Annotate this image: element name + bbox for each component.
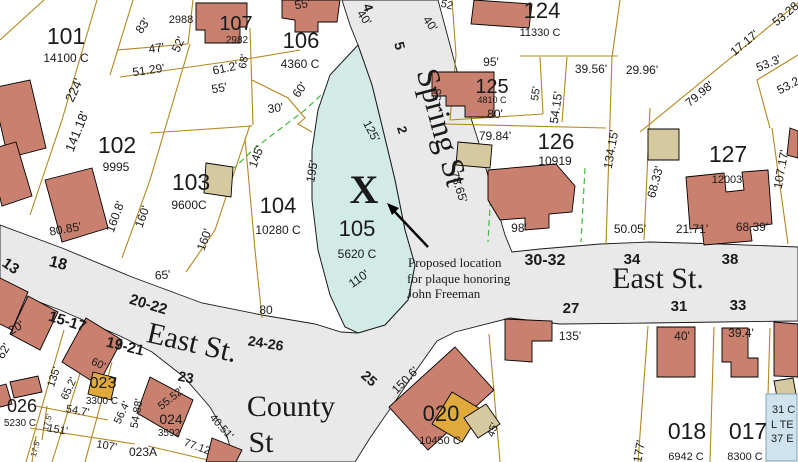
dimension-label: 224' xyxy=(62,76,86,104)
lot-area-label: 4360 C xyxy=(281,57,320,71)
lot-area-label: 11330 C xyxy=(520,27,561,39)
parcel-id-label: 124 xyxy=(524,0,561,23)
info-box-line: L TE xyxy=(771,419,794,431)
building xyxy=(774,322,798,377)
dimension-label: 50.05' xyxy=(614,222,646,236)
dimension-label: 80' xyxy=(487,107,503,121)
dimension-label: 83' xyxy=(133,15,153,36)
street-number-label: 31 xyxy=(671,298,688,315)
dimension-label: 17.17' xyxy=(728,27,762,59)
dimension-label: 160' xyxy=(194,227,215,253)
dimension-label: 53.28 xyxy=(769,0,798,29)
parcel-id-label: 104 xyxy=(260,193,297,218)
parcel-id-label: 106 xyxy=(283,28,320,53)
dimension-label: 135' xyxy=(559,329,581,343)
dimension-label: 65' xyxy=(154,267,171,282)
lot-area-label: 6942 C xyxy=(668,451,704,462)
dimension-label: 134.15' xyxy=(601,129,622,170)
parcel-id-label: 020 xyxy=(423,401,460,426)
parcel-id-label: 127 xyxy=(709,141,747,167)
annotation-line: Proposed location xyxy=(408,255,502,270)
street-number-label: 23 xyxy=(177,368,196,387)
dimension-label: 39.56' xyxy=(575,62,607,76)
dimension-label: 62' xyxy=(0,341,14,362)
street-name-label: St xyxy=(248,426,274,459)
street-number-label: 38 xyxy=(722,251,739,268)
lot-area-label: 3300 C xyxy=(86,396,118,407)
dimension-label: 54.88' xyxy=(129,398,146,429)
lot-area-label: 3592 xyxy=(158,428,181,439)
dimension-label: 51.29' xyxy=(131,61,165,79)
parcel-id-label: 105 xyxy=(339,216,376,241)
dimension-label: 53.2 xyxy=(775,74,798,97)
parcel-id-label: 023A xyxy=(129,445,157,459)
street-number-label: 30-32 xyxy=(525,252,566,269)
dimension-label: 107' xyxy=(95,438,117,453)
dimension-label: 52' xyxy=(169,34,188,54)
dimension-label: 68.39' xyxy=(736,220,768,234)
building xyxy=(488,164,575,230)
dimension-label: 160' xyxy=(132,204,153,230)
dimension-label: 30' xyxy=(267,100,284,116)
parcel-id-label: 103 xyxy=(172,169,210,195)
dimension-label: 160.8' xyxy=(103,199,127,234)
parcel-map-canvas[interactable]: 10114100 C10299951039600C10410280 C10556… xyxy=(0,0,798,462)
building xyxy=(505,319,552,362)
lot-area-label: 4810 C xyxy=(477,95,507,105)
parcel-id-label: 026 xyxy=(7,396,37,416)
parcel-id-label: 126 xyxy=(538,129,575,154)
lot-area-label: 2982 xyxy=(226,35,249,46)
lot-area-label: 9995 xyxy=(103,160,130,174)
dimension-label: 77.12 xyxy=(182,437,212,458)
dimension-label: 39.4' xyxy=(728,326,754,340)
annotation-line: John Freeman xyxy=(407,286,481,301)
dimension-label: 55' xyxy=(431,86,444,101)
building xyxy=(10,376,42,398)
plaque-x-marker: X xyxy=(350,167,379,212)
dimension-label: 65.2' xyxy=(59,376,80,402)
dimension-label: 79.84' xyxy=(479,129,511,143)
lot-area-label: 2988 xyxy=(169,14,193,26)
parcel-id-label: 024 xyxy=(159,411,183,427)
dimension-label: 29.96' xyxy=(626,63,658,77)
dimension-label: 80 xyxy=(259,303,273,317)
parcel-id-label: 102 xyxy=(98,132,136,158)
street-number-label: 33 xyxy=(730,297,747,314)
street-number-label: 27 xyxy=(563,300,580,317)
lot-area-label: 10919 xyxy=(538,154,572,168)
dimension-label: 53.3' xyxy=(754,52,783,75)
parcel-id-label: 017 xyxy=(729,418,767,444)
lot-area-label: 10450 C xyxy=(419,435,461,447)
lot-area-label: 5620 C xyxy=(338,247,377,261)
dimension-label: 98' xyxy=(511,221,527,235)
building xyxy=(648,129,679,160)
street-name-label: County xyxy=(247,390,335,423)
dimension-label: 107.17' xyxy=(771,149,792,190)
parcel-id-label: 101 xyxy=(47,23,85,49)
dimension-label: 95' xyxy=(483,55,499,69)
dimension-label: 61.2' xyxy=(211,59,239,78)
dimension-label: 47' xyxy=(148,40,165,56)
dimension-label: 52 xyxy=(439,0,454,12)
dimension-label: 55' xyxy=(529,86,543,102)
dimension-label: 55' xyxy=(210,80,228,97)
info-box-line: 31 C xyxy=(772,404,795,416)
dimension-label: 21.71' xyxy=(676,222,708,236)
dimension-label: 135' xyxy=(45,365,63,388)
dimension-label: 68' xyxy=(237,53,251,69)
lot-area-label: 14100 C xyxy=(43,51,89,65)
parcel-id-label: 023 xyxy=(90,375,117,392)
lot-area-label: 9600C xyxy=(171,198,207,212)
lot-area-label: 12003 xyxy=(712,174,743,186)
annotation-line: for plaque honoring xyxy=(407,271,511,286)
dimension-label: 17.5' xyxy=(29,438,42,457)
lot-area-label: 5230 C xyxy=(4,418,36,429)
lot-area-label: 8300 C xyxy=(727,451,763,462)
dimension-label: 145' xyxy=(246,144,267,170)
street-name-label: East St. xyxy=(612,262,704,295)
info-box-line: 37 E xyxy=(771,433,794,445)
lot-area-label: 10280 C xyxy=(255,223,301,237)
parcel-id-label: 107 xyxy=(219,13,252,35)
parcel-id-label: 018 xyxy=(668,418,706,444)
dimension-label: 177' xyxy=(630,439,648,462)
dimension-label: 60' xyxy=(290,79,310,100)
dimension-label: 40' xyxy=(674,329,690,343)
dimension-label: 141.18' xyxy=(62,109,92,154)
